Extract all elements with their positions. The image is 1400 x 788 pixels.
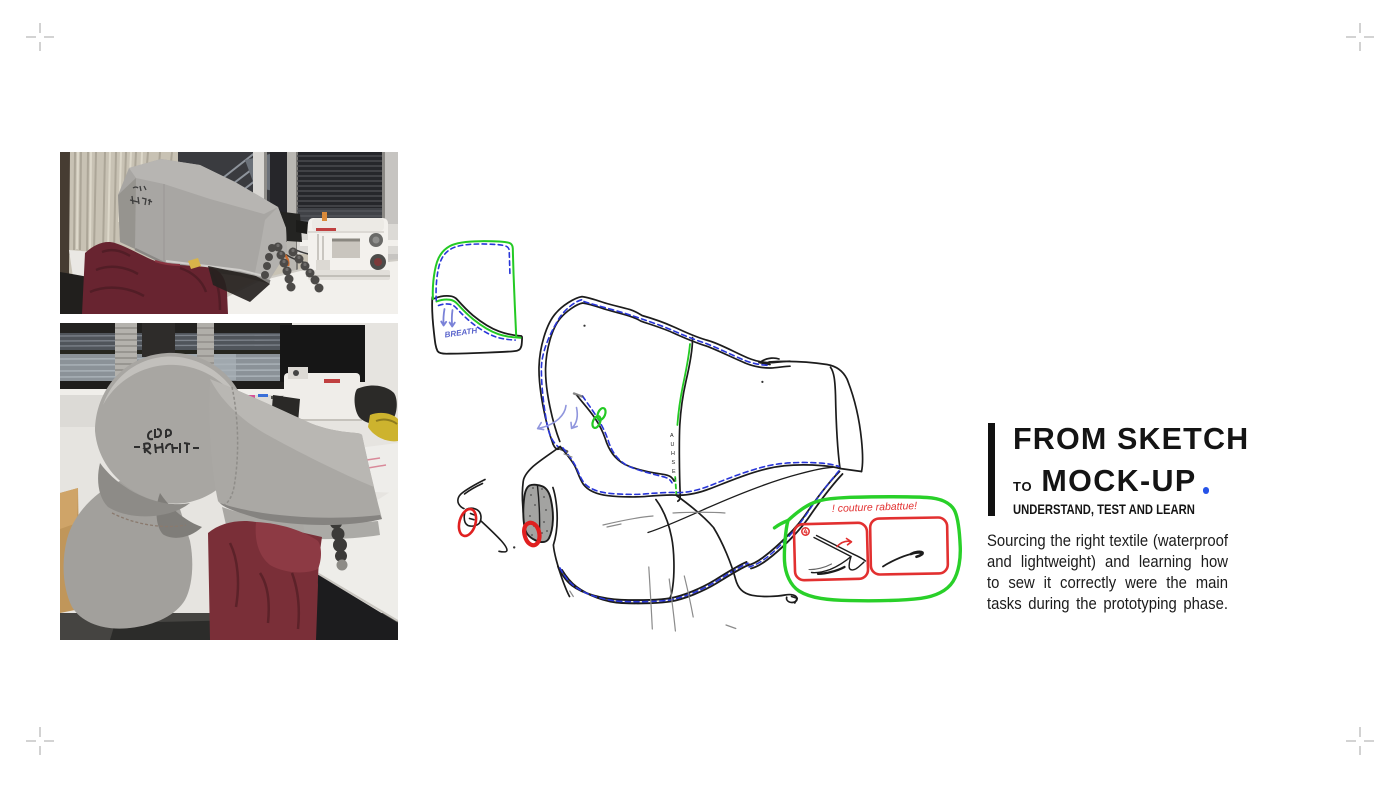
svg-text:A: A bbox=[670, 433, 674, 439]
svg-text:E: E bbox=[672, 469, 676, 475]
svg-text:! couture rabattue!: ! couture rabattue! bbox=[832, 500, 918, 515]
svg-text:S: S bbox=[672, 460, 676, 466]
svg-text:BREATH: BREATH bbox=[444, 326, 478, 339]
svg-text:H: H bbox=[671, 451, 675, 457]
svg-text:U: U bbox=[671, 442, 675, 448]
